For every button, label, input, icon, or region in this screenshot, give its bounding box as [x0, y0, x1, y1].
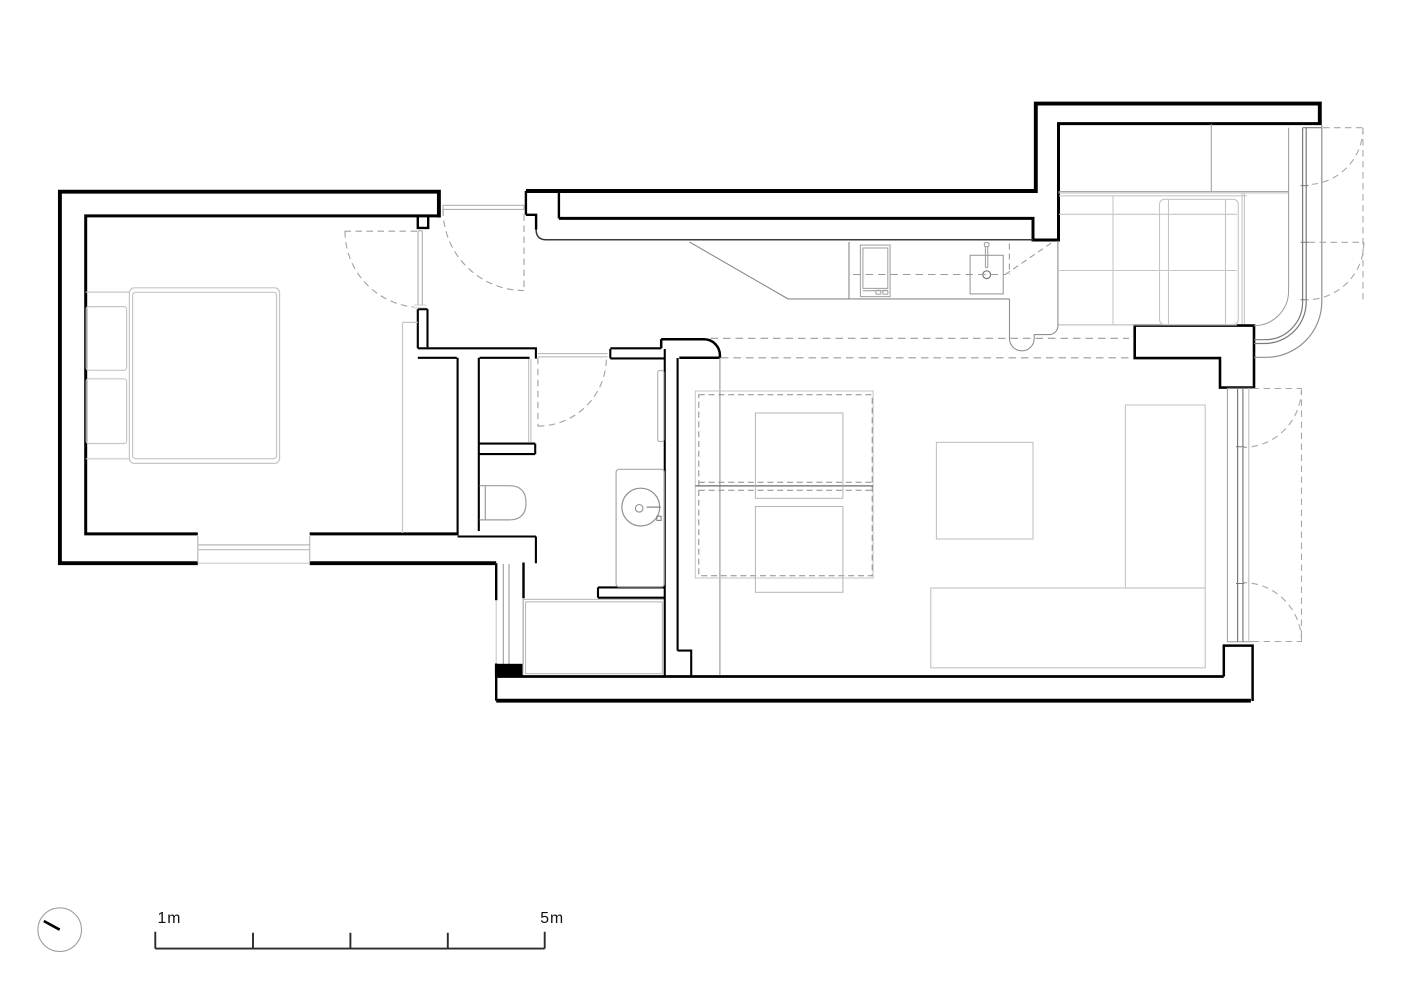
- svg-text:1m: 1m: [158, 910, 182, 927]
- svg-text:5m: 5m: [540, 910, 564, 927]
